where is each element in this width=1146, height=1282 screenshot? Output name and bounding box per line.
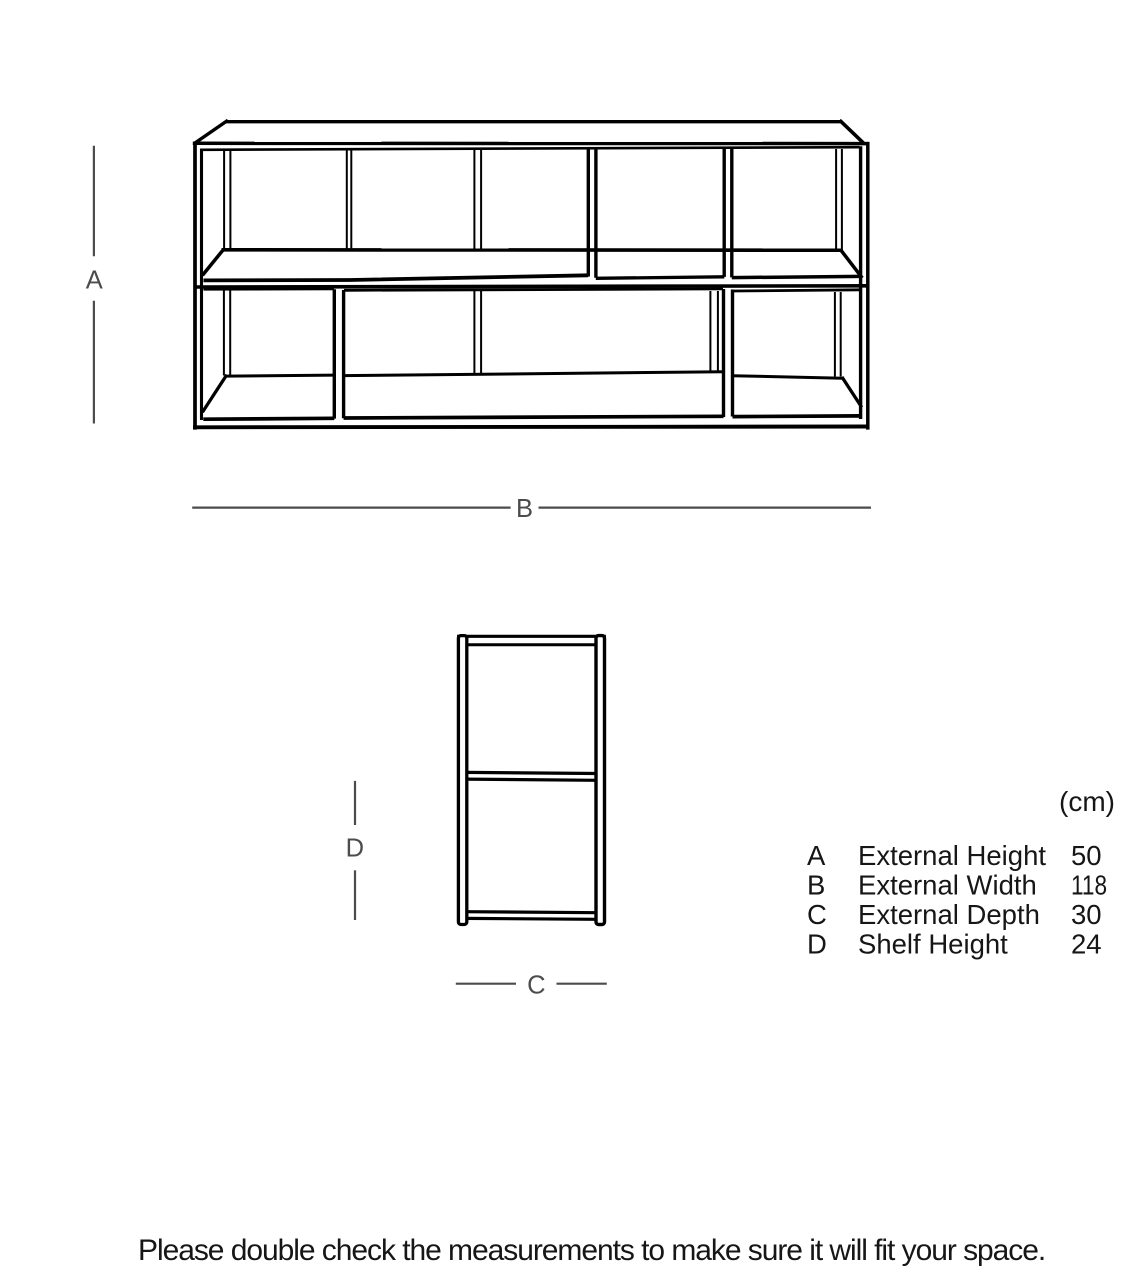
svg-text:Shelf Height: Shelf Height xyxy=(858,929,1008,960)
svg-text:B: B xyxy=(807,870,825,901)
svg-text:Please double check the measur: Please double check the measurements to … xyxy=(138,1234,1045,1267)
svg-text:External Height: External Height xyxy=(858,840,1046,871)
svg-text:D: D xyxy=(346,834,364,862)
svg-text:C: C xyxy=(807,899,827,930)
svg-text:External Width: External Width xyxy=(858,870,1037,901)
svg-text:B: B xyxy=(516,495,533,523)
svg-text:118: 118 xyxy=(1071,870,1107,901)
svg-text:24: 24 xyxy=(1071,929,1102,960)
svg-text:50: 50 xyxy=(1071,840,1102,871)
svg-text:C: C xyxy=(527,972,545,1000)
svg-text:D: D xyxy=(807,929,827,960)
svg-text:30: 30 xyxy=(1071,899,1102,930)
svg-text:External Depth: External Depth xyxy=(858,899,1040,930)
svg-text:A: A xyxy=(807,840,826,871)
svg-text:A: A xyxy=(86,267,103,295)
svg-text:(cm): (cm) xyxy=(1059,786,1115,817)
